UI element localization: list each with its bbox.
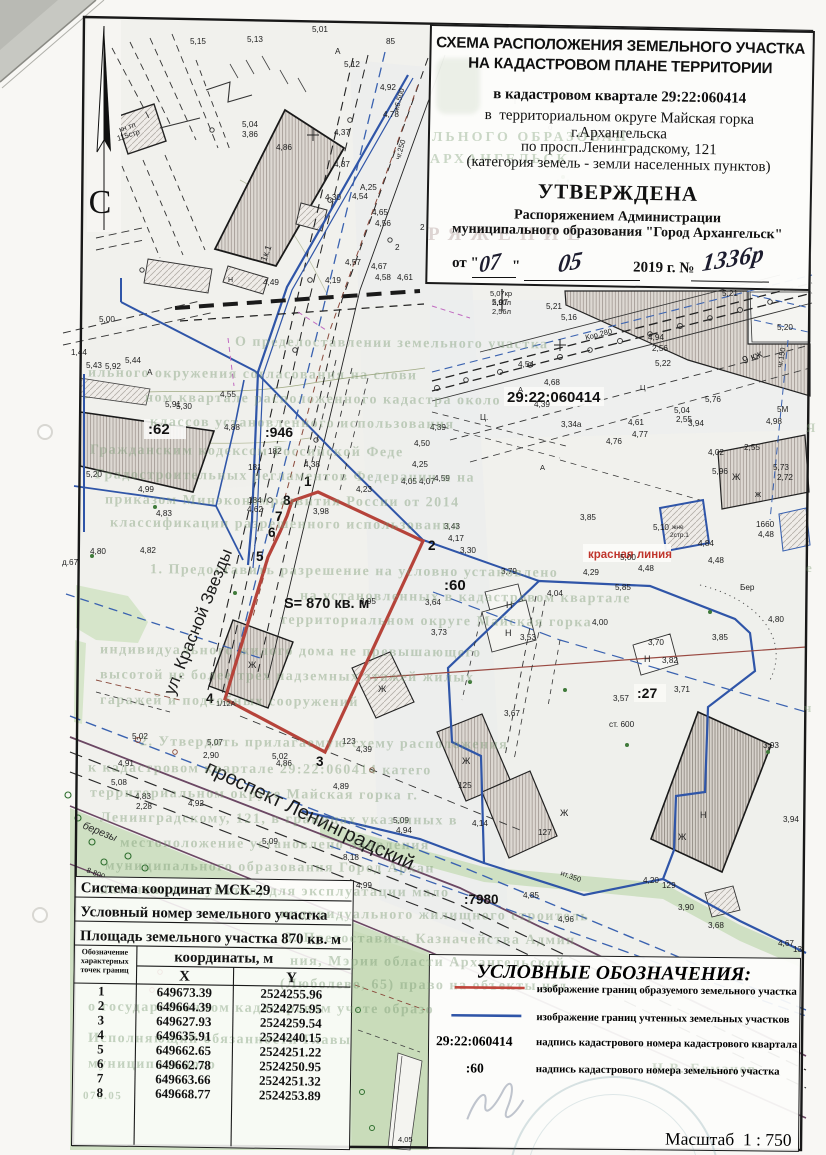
svg-text:4,94: 4,94 [648,333,664,342]
svg-text:3,94: 3,94 [688,419,704,428]
svg-text:X: X [179,969,190,985]
svg-text:3,70: 3,70 [648,638,664,647]
svg-text:4,02: 4,02 [708,448,724,457]
svg-text:4,57: 4,57 [345,258,361,267]
svg-text:29:22:060414: 29:22:060414 [436,1033,513,1049]
svg-text::60: :60 [466,1060,484,1075]
svg-text:4,19: 4,19 [325,276,341,285]
svg-text:649627.93: 649627.93 [156,1013,212,1029]
svg-text::27: :27 [637,685,657,701]
svg-text:УСЛОВНЫЕ ОБОЗНАЧЕНИЯ:: УСЛОВНЫЕ ОБОЗНАЧЕНИЯ: [476,961,751,985]
svg-text:4,61: 4,61 [397,273,413,282]
svg-text:2524275.95: 2524275.95 [260,1000,322,1016]
svg-text:85: 85 [386,37,396,46]
svg-text:4,80: 4,80 [768,615,784,624]
svg-text:А: А [335,47,341,56]
svg-text:3,82: 3,82 [662,656,678,665]
svg-text:4,05: 4,05 [398,1135,413,1144]
svg-text:5,04: 5,04 [242,120,258,129]
svg-text:6: 6 [97,1056,104,1071]
svg-text:4,14: 4,14 [472,819,488,828]
svg-text::7980: :7980 [464,892,499,907]
svg-text:3,86: 3,86 [242,130,258,139]
svg-text:Н: Н [644,654,651,664]
svg-text:2,90: 2,90 [203,751,219,760]
svg-text:3,71: 3,71 [674,685,690,694]
svg-text:4,56: 4,56 [375,219,391,228]
svg-text:Ж: Ж [732,472,741,482]
svg-text:Н: Н [700,810,707,820]
svg-text:1660: 1660 [756,520,775,529]
svg-text:4,30: 4,30 [325,193,341,202]
svg-text:А: А [540,463,545,472]
svg-text:3,34а: 3,34а [561,420,582,429]
svg-text:5,01: 5,01 [312,25,328,34]
svg-text:649673.39: 649673.39 [157,984,213,1000]
svg-text:2524253.89: 2524253.89 [259,1087,321,1103]
svg-text:А: А [518,385,523,394]
svg-text:надпись кадастрового номера ка: надпись кадастрового номера кадастрового… [536,1036,798,1051]
svg-text:4,82: 4,82 [140,546,156,555]
svg-text:3,90: 3,90 [678,903,694,912]
svg-text:5,10: 5,10 [653,523,669,532]
svg-text:5: 5 [256,549,264,564]
svg-text:5,20: 5,20 [777,323,793,332]
svg-text:4,25: 4,25 [412,460,428,469]
svg-text:4,39: 4,39 [534,400,550,409]
svg-text:4,67: 4,67 [778,939,794,948]
svg-text:Масштаб 1 : 750: Масштаб 1 : 750 [665,1128,792,1149]
svg-text:5,04: 5,04 [674,406,690,415]
svg-text:4,67: 4,67 [371,262,387,271]
svg-text:4,77: 4,77 [632,430,648,439]
svg-text:4,48: 4,48 [638,564,654,573]
svg-text:Ж: Ж [560,808,569,818]
svg-text:4,92: 4,92 [380,83,396,92]
svg-text:2: 2 [420,223,425,232]
svg-text:4,61: 4,61 [628,418,644,427]
svg-text:2,56: 2,56 [652,344,668,353]
svg-text:Ж: Ж [462,756,471,766]
svg-text:4,58: 4,58 [375,273,391,282]
svg-text:Ц: Ц [640,383,646,392]
svg-text:Y: Y [286,970,297,986]
svg-text:4,80: 4,80 [90,547,106,556]
svg-text:Площадь земельного участка 870: Площадь земельного участка 870 кв. м [80,928,341,948]
svg-text:4,76: 4,76 [606,437,622,446]
svg-text:5,76: 5,76 [705,395,721,404]
svg-text:4,65: 4,65 [372,208,388,217]
svg-text:2524250.95: 2524250.95 [259,1058,321,1074]
svg-text:2524251.22: 2524251.22 [259,1044,321,1060]
svg-text:Н: Н [228,277,233,284]
svg-text:2: 2 [395,243,400,252]
svg-text:4,84: 4,84 [698,539,714,548]
svg-text:13: 13 [793,945,803,954]
svg-text:649664.39: 649664.39 [156,999,212,1015]
svg-text:Бер: Бер [740,583,755,592]
svg-text:С: С [89,184,112,221]
svg-text:3,85: 3,85 [580,513,596,522]
svg-text:координаты, м: координаты, м [174,949,273,966]
svg-text:3,85: 3,85 [712,633,728,642]
svg-text:4,98: 4,98 [766,417,782,426]
svg-text:5,00: 5,00 [620,553,636,562]
svg-text:125: 125 [458,781,472,790]
svg-text:4,48: 4,48 [708,556,724,565]
svg-text:д.67: д.67 [62,558,79,567]
svg-text:129: 129 [662,881,676,890]
svg-text:4,20: 4,20 [643,876,659,885]
svg-text:649668.77: 649668.77 [155,1086,211,1102]
svg-text:2,55: 2,55 [744,443,760,452]
svg-text:127: 127 [538,828,552,837]
svg-text:ст. 600: ст. 600 [609,720,635,729]
svg-text:7: 7 [97,1070,104,1085]
svg-text:надпись кадастрового номера зе: надпись кадастрового номера земельного у… [536,1063,780,1078]
svg-text:4,50: 4,50 [414,439,430,448]
svg-text:Ц.: Ц. [480,413,488,422]
svg-text:Условный номер земельного учас: Условный номер земельного участка [80,904,328,924]
svg-text:5,73: 5,73 [773,463,789,472]
svg-text:5,12: 5,12 [344,60,360,69]
svg-text:649662.78: 649662.78 [155,1057,211,1073]
svg-text:Ж: Ж [678,832,687,842]
svg-text:4,17: 4,17 [448,534,464,543]
svg-text:649635.91: 649635.91 [156,1028,211,1044]
svg-text:4,54: 4,54 [352,192,368,201]
svg-text:2стр.1: 2стр.1 [670,532,689,539]
svg-text:2: 2 [98,998,105,1013]
svg-text:5,00: 5,00 [99,315,115,324]
svg-text:изображение границ учтенных зе: изображение границ учтенных земельных уч… [536,1011,789,1026]
svg-text:изображение границ образуемого: изображение границ образуемого земельног… [537,983,798,998]
svg-text:3,94: 3,94 [783,815,799,824]
svg-text:3,93: 3,93 [763,741,779,750]
svg-text:4,00: 4,00 [592,618,608,627]
svg-text:точек границ: точек границ [80,965,129,975]
svg-text:4,85: 4,85 [523,891,539,900]
svg-text:5,13: 5,13 [247,35,263,44]
svg-text:3,53: 3,53 [520,633,536,642]
svg-text:А,25: А,25 [360,183,377,192]
svg-text:жне: жне [672,524,684,531]
svg-text:5М: 5М [777,405,789,414]
svg-text:2524251.32: 2524251.32 [259,1073,321,1089]
svg-text:2524255.96: 2524255.96 [260,986,322,1002]
svg-text:2: 2 [428,538,436,553]
svg-text:1: 1 [98,983,105,998]
svg-text:5,44: 5,44 [125,356,141,365]
svg-text:2,72: 2,72 [777,473,793,482]
svg-text:8: 8 [96,1085,103,1100]
svg-text:649663.66: 649663.66 [155,1071,211,1087]
svg-text:5,15: 5,15 [190,37,206,46]
svg-text:5,21: 5,21 [546,302,562,311]
svg-text:ж: ж [755,489,761,499]
svg-text:4,38: 4,38 [304,460,320,469]
svg-text:2524259.54: 2524259.54 [260,1015,322,1031]
svg-text:2,28: 2,28 [136,802,152,811]
svg-text:649662.65: 649662.65 [156,1042,212,1058]
svg-text:5: 5 [97,1041,104,1056]
svg-text:4,37: 4,37 [334,160,350,169]
svg-text:4,86: 4,86 [276,143,292,152]
svg-text:5,22: 5,22 [655,359,671,368]
svg-text:4,29: 4,29 [583,568,599,577]
svg-text:Система координат МСК-29: Система координат МСК-29 [81,880,271,899]
svg-text:3,30: 3,30 [460,546,476,555]
svg-text:2524240.15: 2524240.15 [260,1029,322,1045]
svg-text:4: 4 [97,1027,104,1042]
svg-text:4,48: 4,48 [758,530,774,539]
svg-text:4,37: 4,37 [334,128,350,137]
svg-text:3,67: 3,67 [504,709,520,718]
svg-text:1,44: 1,44 [71,348,87,357]
svg-text:3: 3 [98,1012,105,1027]
svg-text:5,07кр: 5,07кр [490,289,512,298]
svg-text:3,68: 3,68 [708,921,724,930]
svg-text:5,96: 5,96 [712,467,728,476]
svg-text:4,68: 4,68 [544,378,560,387]
svg-text:4,23: 4,23 [356,485,372,494]
svg-text:5,16: 5,16 [561,313,577,322]
svg-text:5,21: 5,21 [722,289,738,298]
svg-text:4,49: 4,49 [263,278,279,287]
svg-text:3,57: 3,57 [613,694,629,703]
